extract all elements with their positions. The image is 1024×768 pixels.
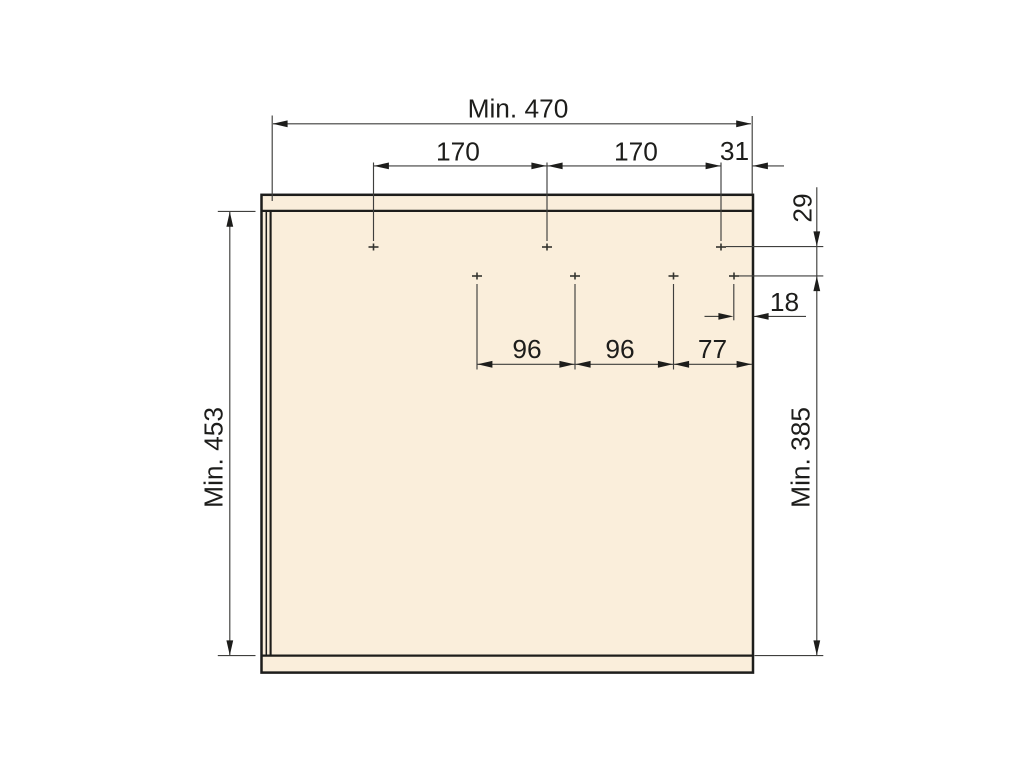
svg-text:170: 170 [614,137,658,167]
svg-text:Min. 470: Min. 470 [468,94,569,124]
svg-text:18: 18 [770,287,799,317]
svg-text:Min. 453: Min. 453 [199,407,229,508]
svg-text:170: 170 [436,137,480,167]
svg-text:96: 96 [512,334,541,364]
svg-text:96: 96 [605,334,634,364]
svg-text:31: 31 [720,136,749,166]
svg-text:29: 29 [788,193,818,222]
svg-text:Min. 385: Min. 385 [786,407,816,508]
svg-text:77: 77 [698,334,727,364]
